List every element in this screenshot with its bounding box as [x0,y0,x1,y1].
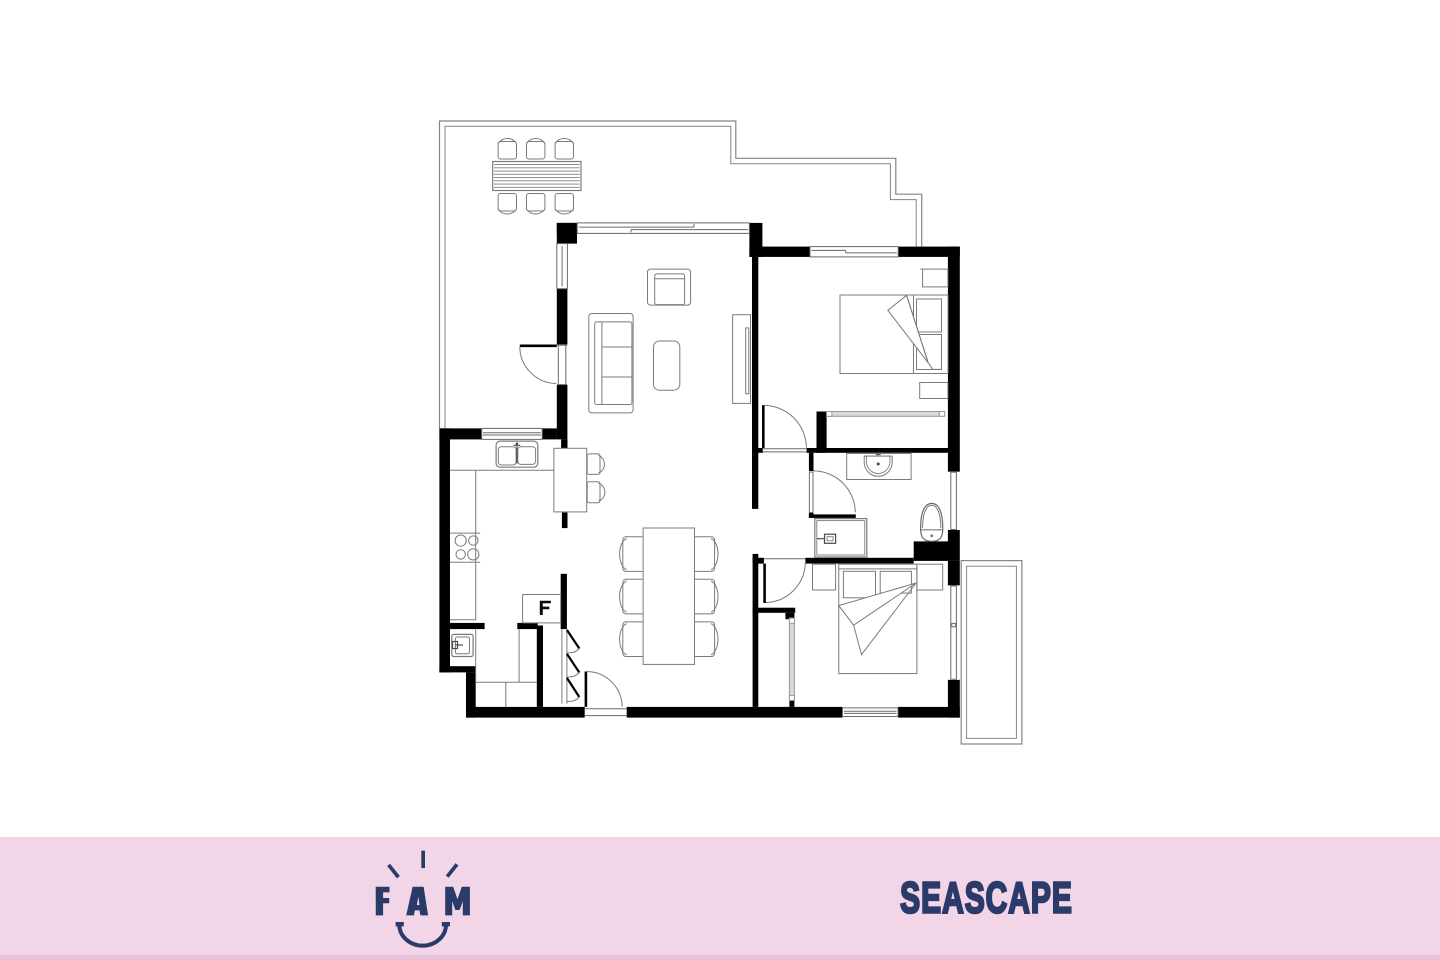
svg-text:SEASCAPE: SEASCAPE [900,873,1073,922]
